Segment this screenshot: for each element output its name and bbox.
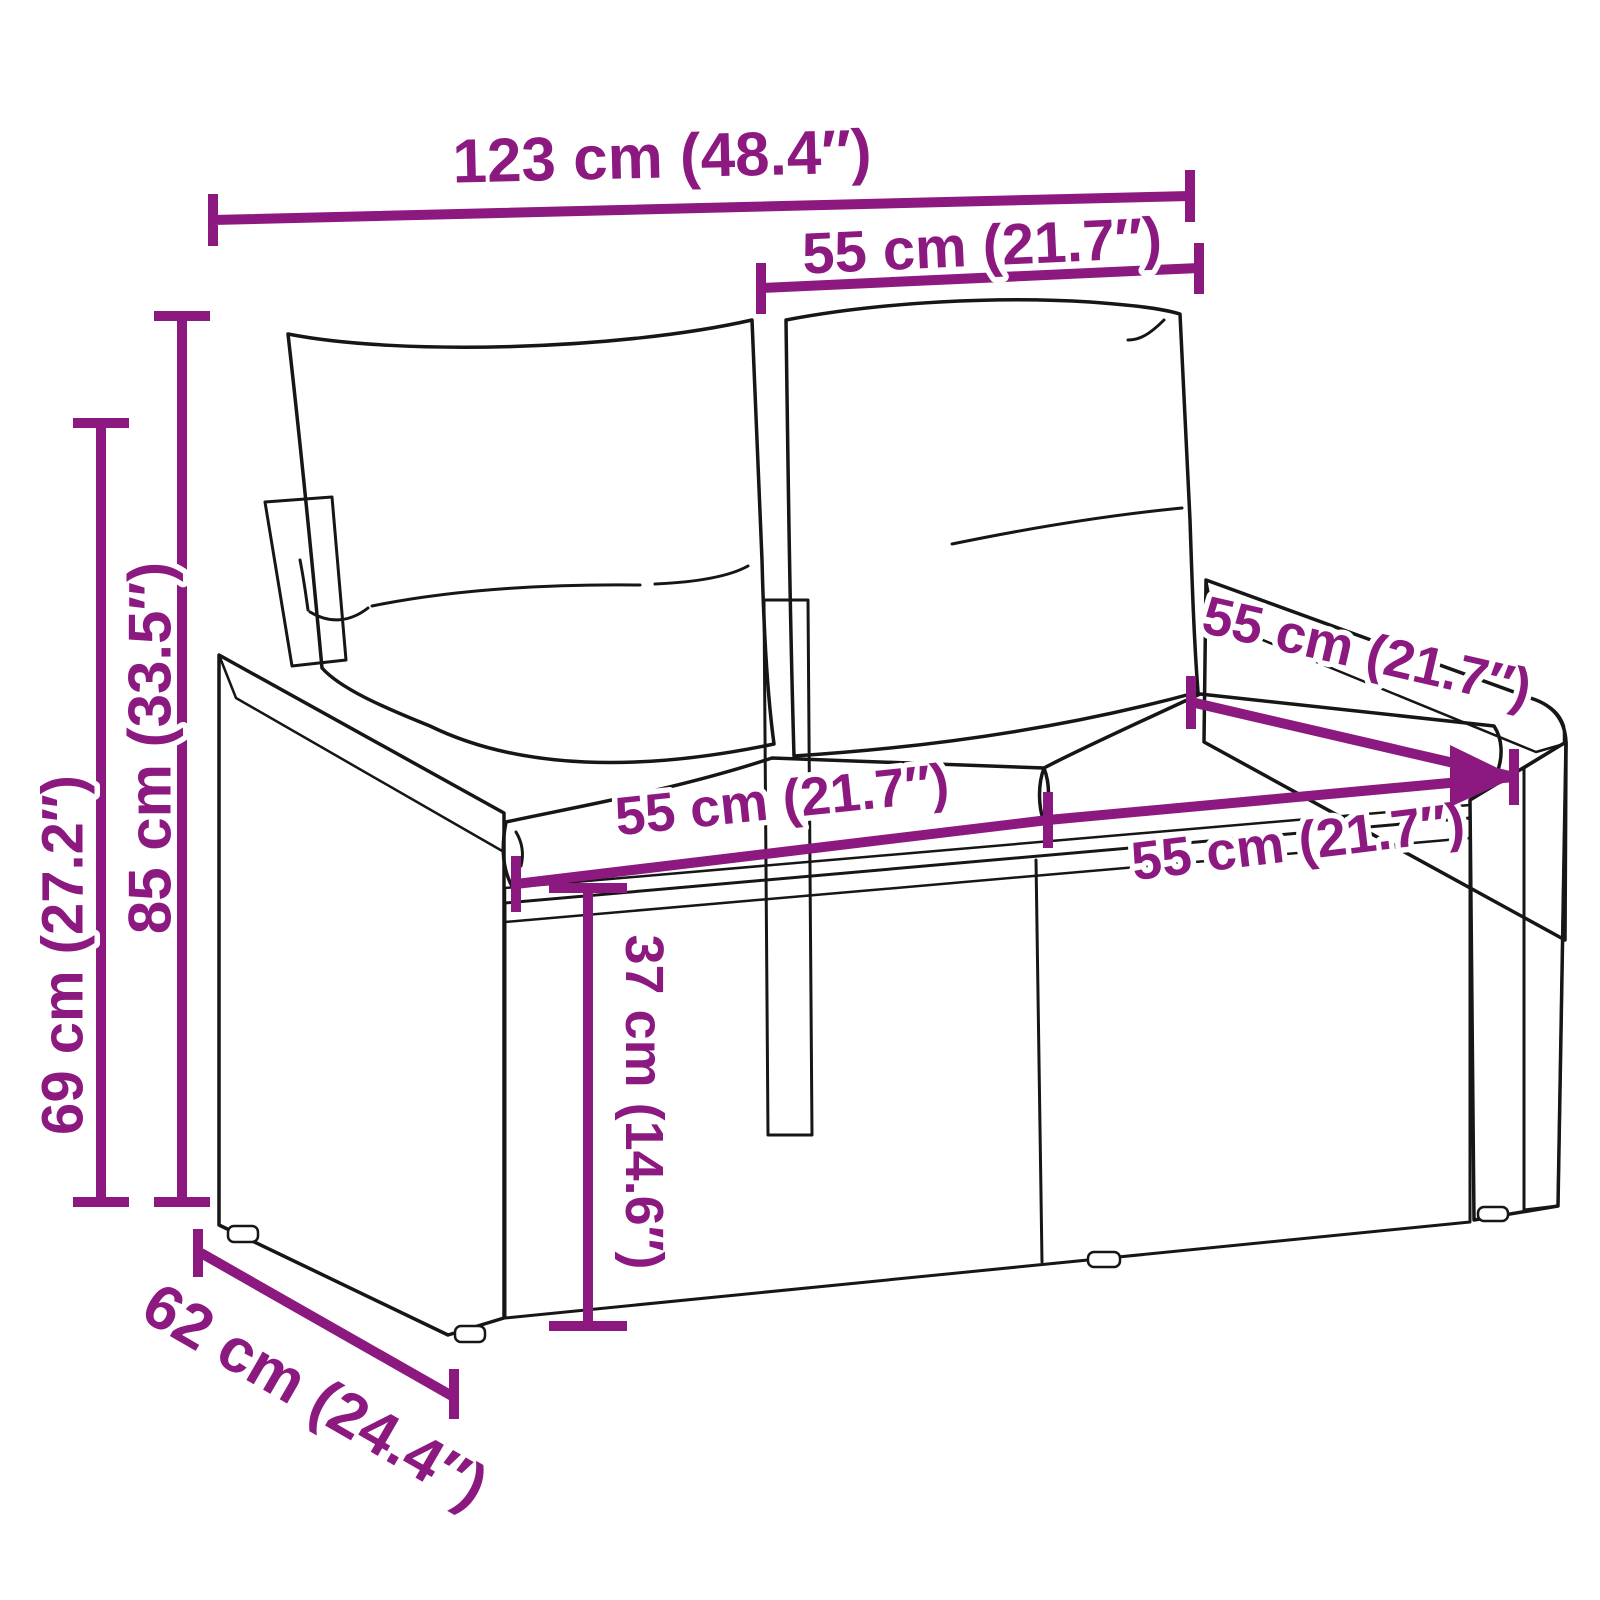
dim-seat-depth: 55 cm (21.7″) bbox=[1191, 585, 1537, 807]
dim-overall-width-label: 123 cm (48.4″) bbox=[452, 117, 873, 196]
dim-total-height: 85 cm (33.5″) bbox=[117, 316, 211, 1202]
dim-base-height: 37 cm (14.6″) bbox=[549, 888, 674, 1326]
armrest-right-front bbox=[1470, 742, 1566, 1220]
back-cushion-left-crease bbox=[300, 560, 748, 620]
armrest-left bbox=[219, 655, 504, 1335]
foot bbox=[1088, 1252, 1120, 1267]
armrest-left-front bbox=[219, 655, 504, 1335]
back-cushion-right-crease bbox=[952, 320, 1182, 544]
dim-arm-height: 69 cm (27.2″) bbox=[31, 423, 130, 1202]
dimension-annotations: 123 cm (48.4″) 55 cm (21.7″) 85 cm (33.5… bbox=[31, 117, 1537, 1522]
dim-right-seat-width: 55 cm (21.7″) bbox=[1048, 749, 1514, 892]
back-cushion-right bbox=[786, 300, 1198, 756]
foot bbox=[228, 1226, 258, 1242]
armrest-left-roll-band bbox=[219, 655, 504, 852]
dim-arm-height-label: 69 cm (27.2″) bbox=[31, 775, 96, 1135]
foot bbox=[455, 1326, 485, 1342]
dim-base-height-label: 37 cm (14.6″) bbox=[614, 934, 674, 1269]
back-cushion-left bbox=[288, 320, 774, 763]
dim-total-height-label: 85 cm (33.5″) bbox=[117, 562, 184, 934]
back-post-left bbox=[265, 497, 346, 666]
dim-arrowhead bbox=[1450, 745, 1516, 807]
back-post-center bbox=[764, 600, 812, 1135]
dim-back-cushion-width: 55 cm (21.7″) bbox=[761, 205, 1199, 314]
foot bbox=[1478, 1207, 1508, 1221]
dimension-diagram: 123 cm (48.4″) 55 cm (21.7″) 85 cm (33.5… bbox=[0, 0, 1600, 1600]
base-module-seam bbox=[1036, 860, 1042, 1262]
armrest-right-corner-strip bbox=[1524, 742, 1566, 1210]
